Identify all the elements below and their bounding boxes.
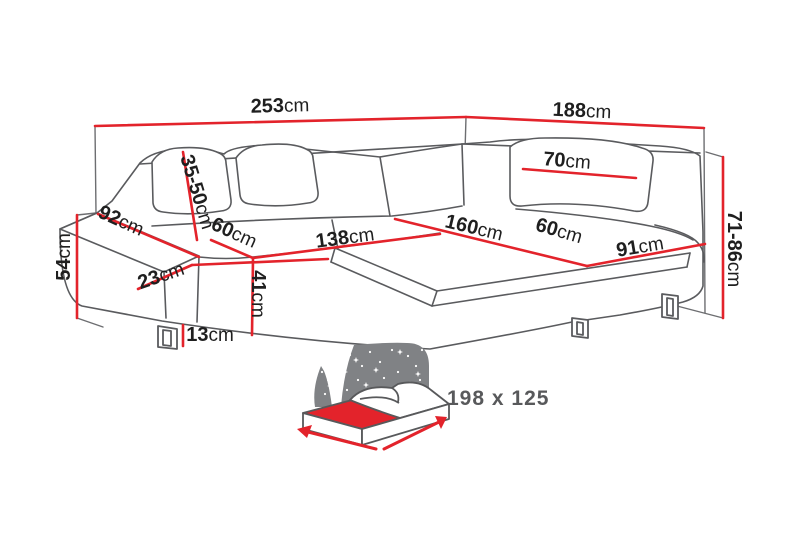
bed-star-dot bbox=[421, 349, 423, 351]
sofa-drawing bbox=[60, 138, 704, 349]
frame-connector-top-right bbox=[706, 152, 723, 157]
sleeping-area-size: 198 x 125 bbox=[447, 387, 549, 411]
bed-star-dot bbox=[415, 365, 417, 367]
bed-star-dot bbox=[369, 351, 371, 353]
dimension-label-dim-188: 188cm bbox=[552, 100, 612, 123]
dimension-label-dim-253: 253cm bbox=[250, 95, 309, 117]
bed-star-dot bbox=[343, 363, 345, 365]
frame-connector-bottom-right bbox=[677, 306, 723, 318]
bed-star-dot bbox=[349, 354, 351, 356]
sofa-bed-icon bbox=[297, 343, 449, 449]
bed-star-dot bbox=[419, 379, 421, 381]
sofa-leg-1 bbox=[158, 326, 177, 349]
sofa-leg-2 bbox=[572, 318, 588, 338]
dimension-line-253 bbox=[95, 117, 466, 126]
sofa-dimension-diagram: 253cm188cm92cm35-50cm60cm138cm70cm160cm6… bbox=[0, 0, 800, 533]
bed-star-dot bbox=[357, 379, 359, 381]
frame-left-edge bbox=[95, 126, 96, 213]
dimension-label-dim-70: 70cm bbox=[542, 149, 591, 173]
headrest-cushion-2 bbox=[236, 144, 318, 206]
bed-star-dot bbox=[361, 365, 363, 367]
dimension-label-dim-41: 41cm bbox=[248, 270, 268, 318]
frame-connector-bottom-left bbox=[77, 318, 103, 327]
sofa-leg-3 bbox=[662, 294, 678, 319]
dimension-label-dim-13: 13cm bbox=[186, 325, 234, 345]
bed-star-dot bbox=[324, 393, 326, 395]
bed-star-dot bbox=[407, 355, 409, 357]
bed-star-dot bbox=[327, 379, 329, 381]
bed-star-dot bbox=[346, 389, 348, 391]
frame-right-edge bbox=[704, 128, 705, 313]
bed-star-dot bbox=[379, 361, 381, 363]
bed-star-dot bbox=[383, 377, 385, 379]
bed-star-dot bbox=[391, 349, 393, 351]
bed-star-dot bbox=[321, 371, 323, 373]
diagram-svg bbox=[0, 0, 800, 533]
dimension-label-dim-54: 54cm bbox=[54, 233, 74, 281]
bed-star-dot bbox=[397, 371, 399, 373]
dimension-label-dim-71-86: 71-86cm bbox=[724, 211, 744, 287]
